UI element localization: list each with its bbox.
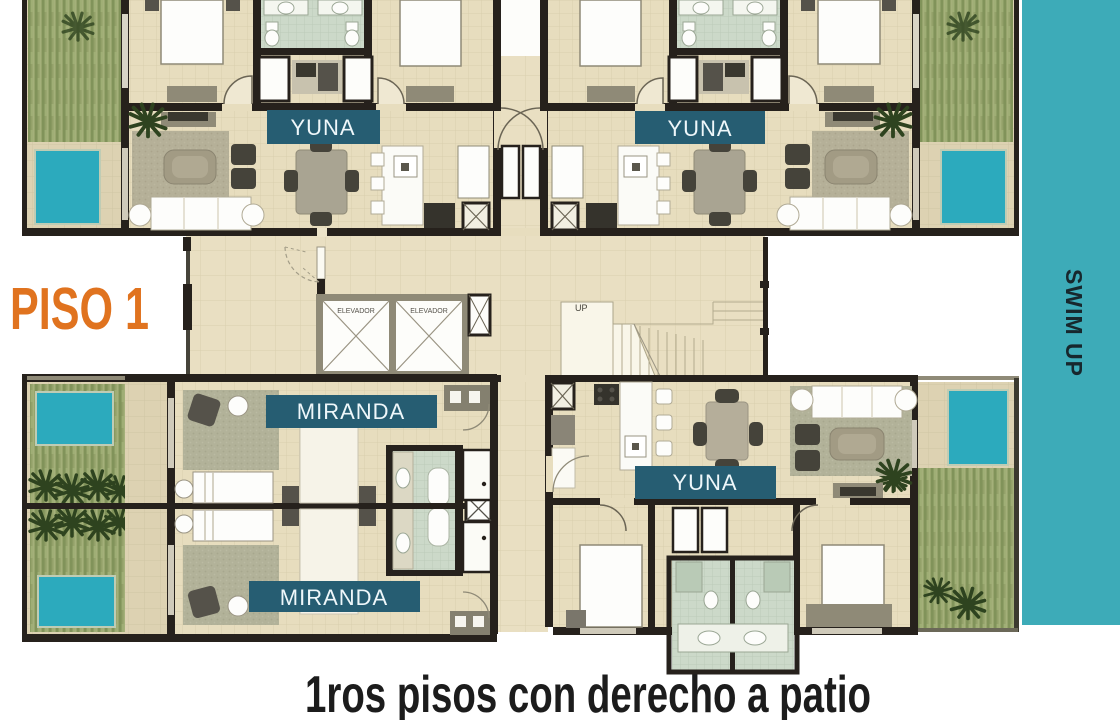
svg-text:SWIM UP: SWIM UP xyxy=(1061,269,1087,377)
svg-text:ELEVADOR: ELEVADOR xyxy=(337,308,375,315)
svg-text:UP: UP xyxy=(575,303,588,313)
svg-text:MIRANDA: MIRANDA xyxy=(297,399,405,424)
svg-text:PISO 1: PISO 1 xyxy=(10,276,149,342)
svg-text:YUNA: YUNA xyxy=(667,116,732,141)
svg-text:YUNA: YUNA xyxy=(672,470,737,495)
svg-text:YUNA: YUNA xyxy=(290,115,355,140)
svg-text:MIRANDA: MIRANDA xyxy=(280,585,388,610)
svg-text:ELEVADOR: ELEVADOR xyxy=(410,308,448,315)
